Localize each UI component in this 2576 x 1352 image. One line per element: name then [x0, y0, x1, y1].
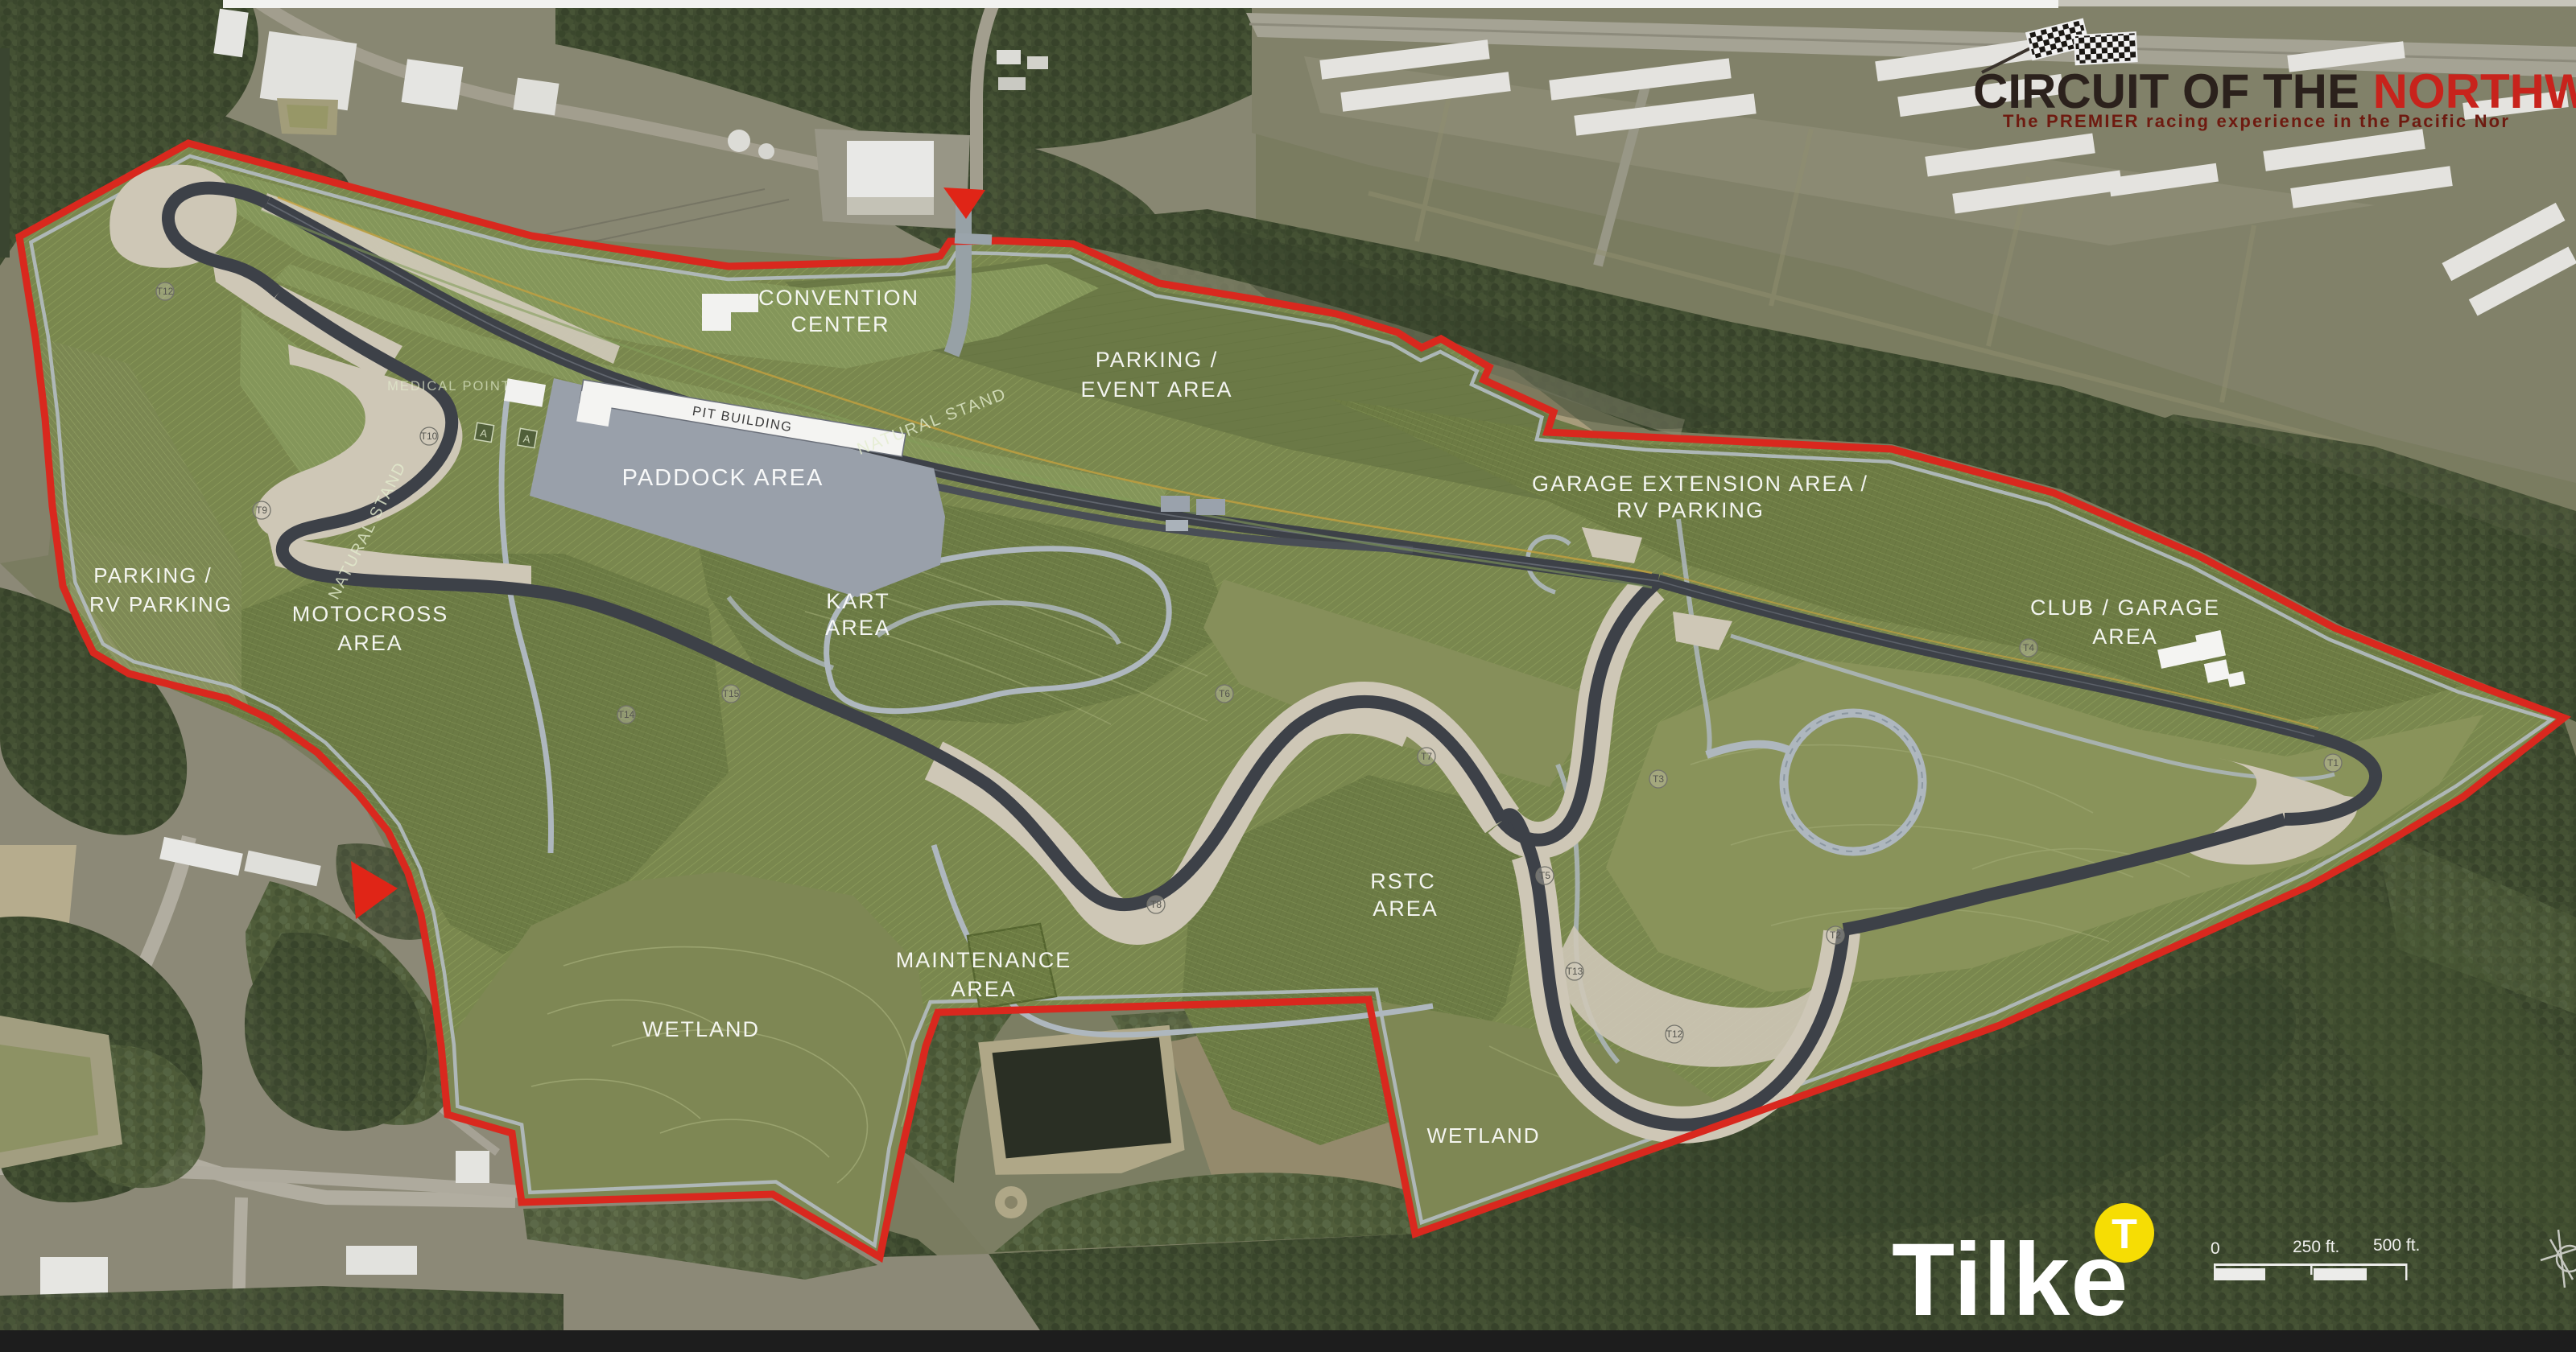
svg-text:T8: T8	[1150, 899, 1162, 910]
svg-text:T3: T3	[1653, 773, 1664, 785]
svg-text:T2: T2	[1830, 929, 1841, 941]
svg-text:CLUB / GARAGE: CLUB / GARAGE	[2030, 596, 2220, 620]
svg-text:KART: KART	[826, 589, 890, 613]
svg-text:0: 0	[2211, 1239, 2220, 1258]
svg-text:500 ft.: 500 ft.	[2373, 1236, 2420, 1255]
svg-text:T: T	[2112, 1211, 2137, 1258]
svg-text:CIRCUIT OF THE NORTHWEST: CIRCUIT OF THE NORTHWEST	[1973, 64, 2576, 118]
svg-text:AREA: AREA	[825, 616, 891, 640]
svg-text:GARAGE EXTENSION AREA /: GARAGE EXTENSION AREA /	[1532, 472, 1868, 496]
svg-text:RSTC: RSTC	[1370, 869, 1436, 893]
svg-text:T4: T4	[2023, 642, 2034, 653]
svg-text:T5: T5	[1539, 870, 1550, 881]
svg-text:T10: T10	[421, 431, 438, 442]
svg-text:T6: T6	[1219, 688, 1230, 699]
svg-text:T15: T15	[723, 688, 740, 699]
svg-text:RV PARKING: RV PARKING	[1616, 498, 1765, 522]
svg-text:MOTOCROSS: MOTOCROSS	[292, 602, 449, 626]
svg-text:MEDICAL POINT: MEDICAL POINT	[387, 379, 511, 394]
svg-text:T14: T14	[618, 709, 635, 720]
svg-text:CONVENTION: CONVENTION	[758, 286, 919, 310]
svg-text:RV PARKING: RV PARKING	[89, 592, 233, 616]
svg-text:Tilke: Tilke	[1892, 1222, 2128, 1338]
svg-text:PADDOCK AREA: PADDOCK AREA	[622, 465, 824, 491]
svg-text:AREA: AREA	[951, 977, 1017, 1001]
svg-text:PARKING /: PARKING /	[1096, 348, 1219, 372]
svg-text:WETLAND: WETLAND	[642, 1017, 760, 1041]
svg-text:T13: T13	[1567, 966, 1583, 977]
svg-text:WETLAND: WETLAND	[1426, 1123, 1540, 1148]
svg-text:CENTER: CENTER	[791, 312, 890, 336]
svg-text:250 ft.: 250 ft.	[2293, 1238, 2339, 1256]
svg-text:EVENT AREA: EVENT AREA	[1080, 377, 1232, 402]
svg-text:T9: T9	[256, 505, 267, 516]
svg-text:The PREMIER racing experience: The PREMIER racing experience in the Pac…	[2003, 111, 2510, 131]
svg-text:PARKING /: PARKING /	[93, 563, 213, 587]
svg-text:MAINTENANCE: MAINTENANCE	[896, 948, 1072, 972]
svg-text:AREA: AREA	[1373, 897, 1439, 921]
svg-text:T12: T12	[157, 286, 174, 297]
svg-text:AREA: AREA	[2092, 624, 2158, 649]
svg-text:AREA: AREA	[337, 631, 403, 655]
svg-text:T1: T1	[2327, 757, 2339, 769]
svg-text:T12: T12	[1666, 1028, 1683, 1040]
svg-text:T7: T7	[1421, 751, 1432, 762]
